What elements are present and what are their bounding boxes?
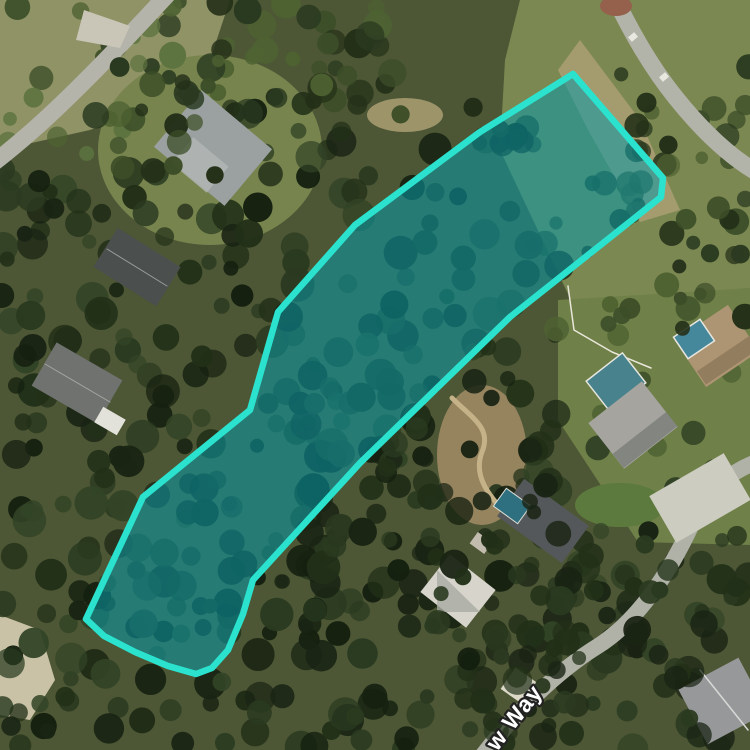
- satellite-imagery: w Way: [0, 0, 750, 750]
- map-canvas[interactable]: w Way: [0, 0, 750, 750]
